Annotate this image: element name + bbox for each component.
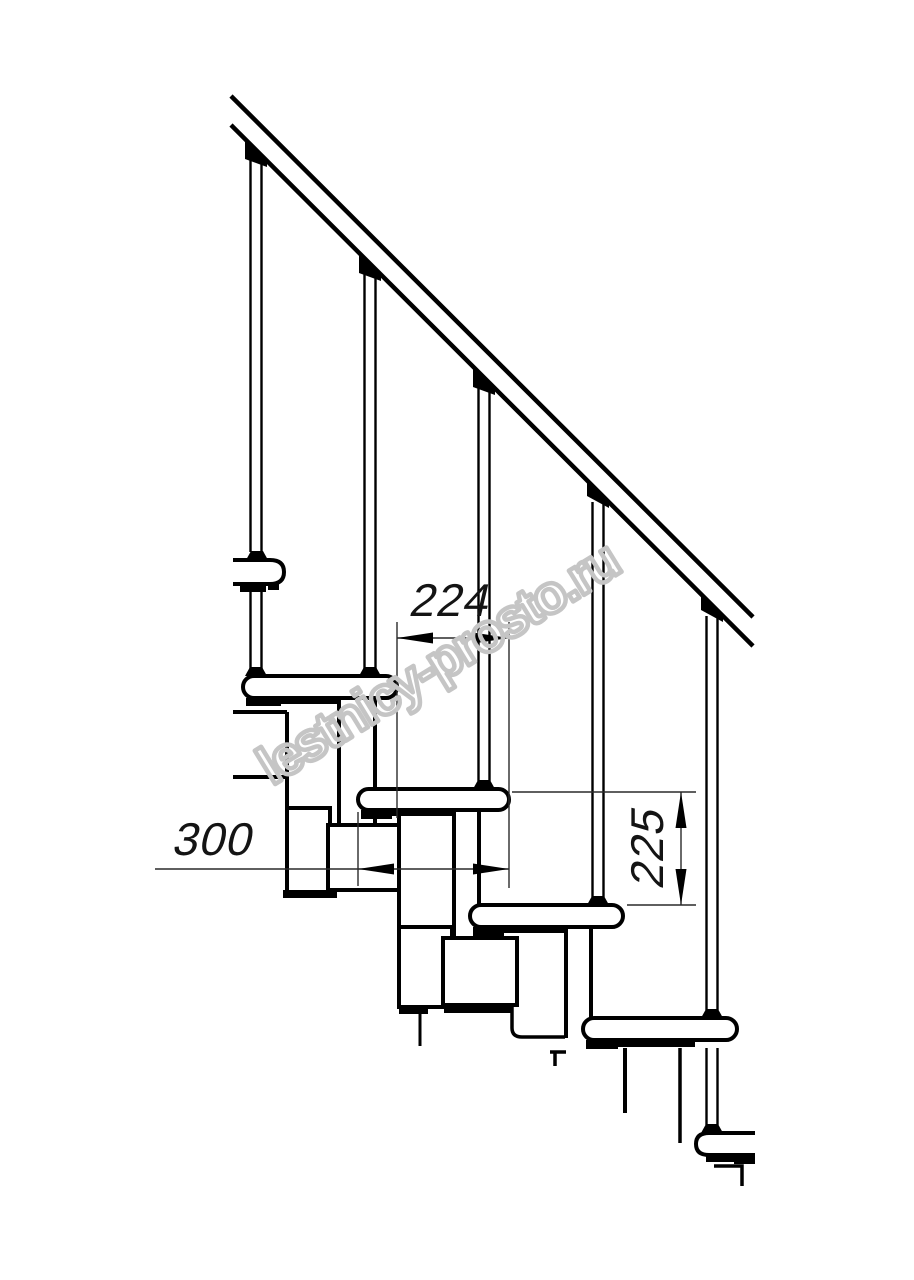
module-cube-2 <box>443 938 517 1005</box>
handrail-lower-line <box>231 125 753 646</box>
baluster-2 <box>365 274 376 669</box>
bar-under-tread3 <box>392 810 454 816</box>
pad-under-box2 <box>399 1006 428 1014</box>
arrowhead-right <box>473 864 509 875</box>
bar-under-tread4 <box>504 927 566 933</box>
staircase-technical-drawing: 224 300 225 lestnicy-prosto.ru <box>0 0 914 1280</box>
handrail-upper-line <box>231 96 753 617</box>
pad-under-tread5 <box>586 1040 618 1049</box>
tread-6-cut <box>696 1133 755 1155</box>
drawing-canvas: 224 300 225 lestnicy-prosto.ru <box>0 0 914 1280</box>
dim-label-225: 225 <box>622 801 673 893</box>
baluster-1 <box>251 160 262 669</box>
arrowhead-down <box>676 869 687 905</box>
tread-3 <box>358 789 509 810</box>
bar-under-tread5 <box>618 1040 695 1047</box>
module-cube-1 <box>328 825 399 890</box>
frame-step-branch <box>287 808 330 825</box>
baluster1-foot-tread1 <box>246 551 268 560</box>
bottom-cut-l-line <box>714 1166 742 1186</box>
pad-under-tread2 <box>246 698 281 706</box>
baluster-5 <box>707 616 718 1125</box>
dim-label-300: 300 <box>169 814 261 865</box>
baluster4-foot-tread4 <box>587 896 609 905</box>
arrowhead-up <box>676 792 687 828</box>
module-elbow <box>512 1005 565 1037</box>
tread-1-cut <box>233 560 284 584</box>
pad-under-tread1-b <box>268 584 279 590</box>
pad-under-cube2 <box>444 1005 512 1013</box>
module-cube-3-top-tick <box>550 1052 566 1066</box>
baluster5-foot-tread6 <box>701 1124 723 1133</box>
watermark-text: lestnicy-prosto.ru <box>247 530 629 796</box>
tread-5 <box>583 1018 737 1040</box>
baluster5-foot-tread5 <box>701 1009 723 1018</box>
pad-under-tread4 <box>473 927 504 936</box>
dimensions: 224 300 225 <box>155 575 696 905</box>
pad-under-tread6 <box>706 1155 737 1162</box>
pad-under-tread1 <box>240 584 266 592</box>
pad-under-cube1 <box>283 890 337 898</box>
bar-under-tread6 <box>734 1155 755 1164</box>
baluster1-foot-tread2 <box>245 667 267 676</box>
handrail <box>231 96 753 646</box>
pad-under-tread3 <box>361 810 392 819</box>
tread-4 <box>470 905 623 927</box>
baluster3-foot-tread3 <box>473 780 495 789</box>
